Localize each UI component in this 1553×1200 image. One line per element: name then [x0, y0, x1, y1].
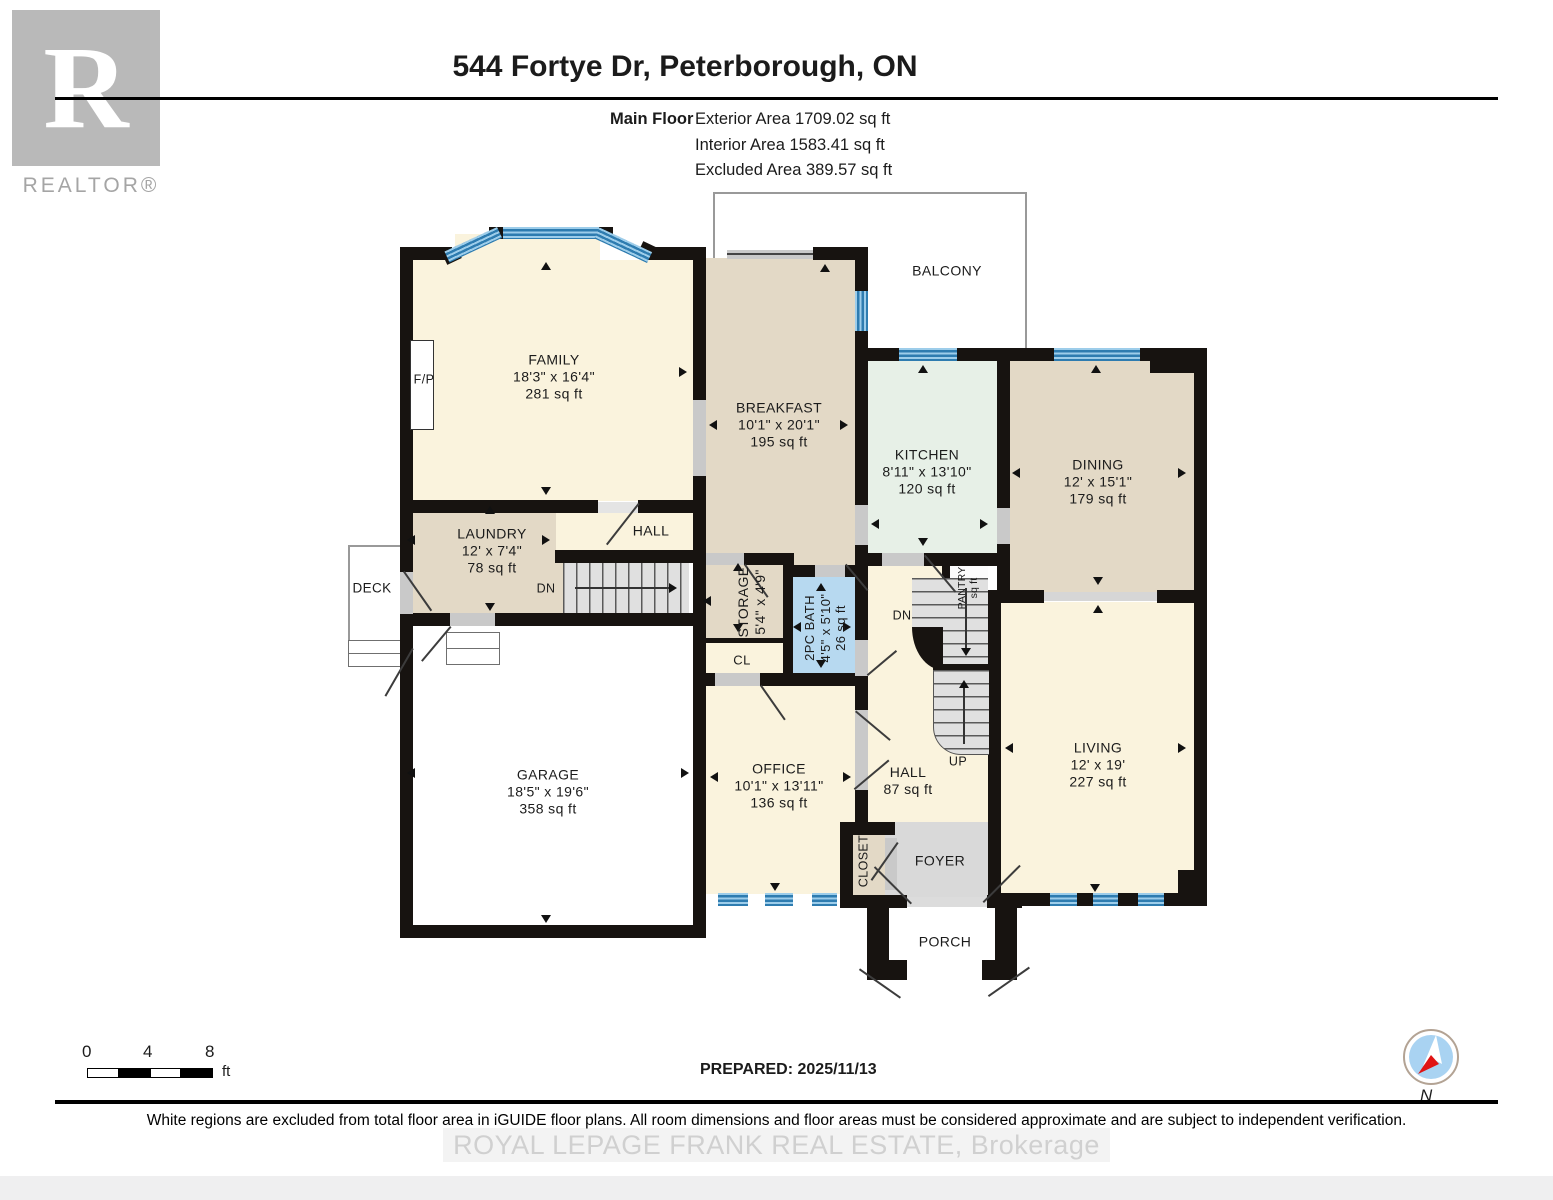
- stairs-arrow-head: [669, 583, 677, 593]
- wall: [1118, 893, 1138, 906]
- wall: [400, 925, 706, 938]
- dimension-arrow: [542, 535, 550, 545]
- wall: [495, 613, 706, 626]
- door-opening: [815, 565, 845, 577]
- window: [1093, 893, 1118, 906]
- wall: [855, 676, 868, 710]
- label-stairs-dn-right: DN: [893, 608, 912, 625]
- dimension-arrow: [703, 596, 711, 606]
- label-balcony: BALCONY: [912, 263, 982, 280]
- dimension-arrow: [840, 420, 848, 430]
- label-fireplace: F/P: [414, 372, 435, 389]
- door-opening: [907, 897, 987, 907]
- stairs-arrow: [963, 686, 965, 744]
- realtor-logo-label: REALTOR®: [6, 174, 176, 198]
- window: [1050, 893, 1077, 906]
- dimension-arrow: [485, 506, 495, 514]
- area-excluded: Excluded Area 389.57 sq ft: [695, 161, 892, 180]
- wall: [997, 360, 1010, 508]
- label-living: LIVING12' x 19'227 sq ft: [1069, 740, 1126, 791]
- window: [1054, 348, 1140, 361]
- dimension-arrow: [793, 622, 801, 632]
- dimension-arrow: [1178, 468, 1186, 478]
- sliding-door-track: [727, 253, 813, 255]
- dimension-arrow: [1090, 884, 1100, 892]
- dimension-arrow: [820, 264, 830, 272]
- label-office: OFFICE10'1" x 13'11"136 sq ft: [734, 761, 823, 812]
- realtor-logo-letter: R: [43, 22, 128, 153]
- dimension-arrow: [1091, 365, 1101, 373]
- stairs-arrow: [575, 587, 671, 589]
- wall: [693, 673, 715, 686]
- scale-bar-segment: [150, 1068, 181, 1078]
- realtor-logo: R: [12, 10, 160, 166]
- wall: [693, 247, 706, 400]
- label-closet: CLOSET: [856, 835, 873, 887]
- wall: [1194, 348, 1207, 603]
- garage-step: [446, 648, 500, 665]
- label-cl: CL: [733, 652, 750, 669]
- door-opening: [727, 250, 813, 259]
- label-hall-upper: HALL: [633, 523, 670, 540]
- header-divider: [55, 97, 1498, 100]
- scale-bar-segment: [181, 1068, 213, 1078]
- label-stairs-dn-left: DN: [537, 581, 556, 598]
- wall: [744, 553, 794, 565]
- dimension-arrow: [681, 768, 689, 778]
- dimension-arrow: [485, 603, 495, 611]
- dimension-arrow: [1012, 468, 1020, 478]
- wall: [555, 550, 705, 563]
- label-stairs-up: UP: [949, 754, 967, 771]
- dimension-arrow: [918, 365, 928, 373]
- dimension-arrow: [407, 535, 415, 545]
- wall: [924, 553, 997, 566]
- label-porch: PORCH: [919, 934, 972, 951]
- label-foyer: FOYER: [915, 853, 965, 870]
- wall: [995, 905, 1017, 967]
- wall: [982, 960, 1017, 980]
- wall: [1164, 893, 1207, 906]
- door-opening: [715, 673, 760, 686]
- window: [718, 893, 748, 906]
- watermark-text: ROYAL LEPAGE FRANK REAL ESTATE, Brokerag…: [443, 1128, 1110, 1162]
- label-bath: 2PC BATH4'5" x 5'10"26 sq ft: [802, 594, 849, 663]
- wall: [988, 603, 1001, 893]
- label-storage: STORAGE5'4" x 4'9": [735, 566, 769, 637]
- window: [855, 291, 868, 331]
- wall: [1194, 600, 1207, 906]
- wall: [1077, 893, 1093, 906]
- door-opening: [693, 400, 706, 476]
- prepared-date: PREPARED: 2025/11/13: [700, 1061, 877, 1079]
- scale-unit: ft: [222, 1063, 230, 1080]
- label-kitchen: KITCHEN8'11" x 13'10"120 sq ft: [882, 447, 971, 498]
- dimension-arrow: [679, 367, 687, 377]
- watermark: ROYAL LEPAGE FRANK REAL ESTATE, Brokerag…: [0, 1130, 1553, 1161]
- floor-label: Main Floor: [610, 110, 693, 129]
- dimension-arrow: [871, 519, 879, 529]
- scale-tick-4: 4: [143, 1042, 152, 1062]
- door-opening: [1044, 592, 1157, 601]
- door-opening: [882, 553, 924, 566]
- wall: [855, 577, 868, 640]
- label-dining: DINING12' x 15'1"179 sq ft: [1064, 457, 1132, 508]
- wall: [855, 360, 868, 505]
- label-laundry: LAUNDRY12' x 7'4"78 sq ft: [457, 526, 526, 577]
- dimension-arrow: [710, 772, 718, 782]
- dimension-arrow: [541, 487, 551, 495]
- scale-tick-0: 0: [82, 1042, 91, 1062]
- dimension-arrow: [770, 883, 780, 891]
- stairs-arrow-head: [959, 680, 969, 688]
- window: [765, 893, 793, 906]
- label-deck: DECK: [352, 580, 391, 597]
- area-interior: Interior Area 1583.41 sq ft: [695, 136, 885, 155]
- wall: [868, 553, 882, 566]
- door-opening: [450, 613, 495, 626]
- window: [812, 893, 837, 906]
- wall: [693, 475, 706, 513]
- wall: [988, 590, 1044, 603]
- bottom-bar: [0, 1176, 1553, 1200]
- door-opening: [855, 640, 868, 676]
- window: [1138, 893, 1164, 906]
- wall: [840, 822, 895, 835]
- label-pantry: PANTRYsq ft: [956, 567, 980, 610]
- window: [503, 227, 599, 239]
- dimension-arrow: [980, 519, 988, 529]
- stairs-arrow-head: [961, 648, 971, 656]
- page-title: 544 Fortye Dr, Peterborough, ON: [330, 50, 1040, 84]
- dimension-arrow: [709, 420, 717, 430]
- dimension-arrow: [843, 772, 851, 782]
- label-breakfast: BREAKFAST10'1" x 20'1"195 sq ft: [736, 400, 822, 451]
- wall: [855, 255, 868, 293]
- label-family: FAMILY18'3" x 16'4"281 sq ft: [513, 352, 595, 403]
- footer-divider: [55, 1100, 1498, 1104]
- wall: [412, 613, 450, 626]
- dimension-arrow: [541, 262, 551, 270]
- label-hall-lower: HALL87 sq ft: [883, 764, 932, 798]
- wall: [760, 673, 868, 686]
- stairs-landing: [912, 578, 943, 627]
- wall: [698, 638, 784, 643]
- dimension-arrow: [1093, 577, 1103, 585]
- scale-tick-8: 8: [205, 1042, 214, 1062]
- floor-plan-page: R REALTOR® 544 Fortye Dr, Peterborough, …: [0, 0, 1553, 1200]
- dimension-arrow: [541, 915, 551, 923]
- wall: [867, 905, 889, 967]
- door-opening: [855, 505, 868, 545]
- compass-icon: [1398, 1026, 1468, 1104]
- dimension-arrow: [1093, 605, 1103, 613]
- area-exterior: Exterior Area 1709.02 sq ft: [695, 110, 890, 129]
- wall: [783, 565, 793, 677]
- label-garage: GARAGE18'5" x 19'6"358 sq ft: [507, 767, 589, 818]
- wall: [790, 565, 817, 577]
- wall: [400, 500, 598, 513]
- scale-bar-segment: [87, 1068, 119, 1078]
- dimension-arrow: [816, 583, 826, 591]
- door-opening: [997, 508, 1010, 544]
- dimension-arrow: [1005, 743, 1013, 753]
- disclaimer: White regions are excluded from total fl…: [0, 1112, 1553, 1130]
- window: [899, 348, 957, 361]
- dimension-arrow: [407, 768, 415, 778]
- scale-bar-segment: [119, 1068, 150, 1078]
- dimension-arrow: [1178, 743, 1186, 753]
- dimension-arrow: [918, 538, 928, 546]
